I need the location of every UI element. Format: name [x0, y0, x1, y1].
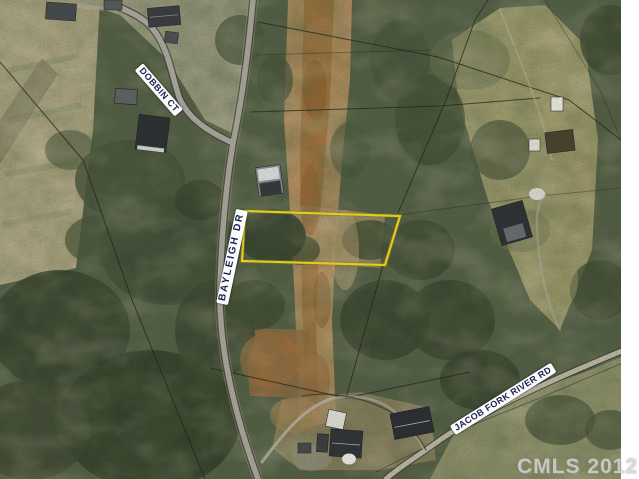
watermark-cmls-2012: CMLS 2012: [517, 456, 638, 477]
mls-aerial-photo: DOBBIN CT BAYLEIGH DR JACOB FORK RIVER R…: [0, 0, 639, 479]
aerial-photo-canvas: [0, 0, 639, 479]
photo-grain-overlay: [0, 0, 639, 479]
scan-margin-right: [621, 0, 639, 479]
